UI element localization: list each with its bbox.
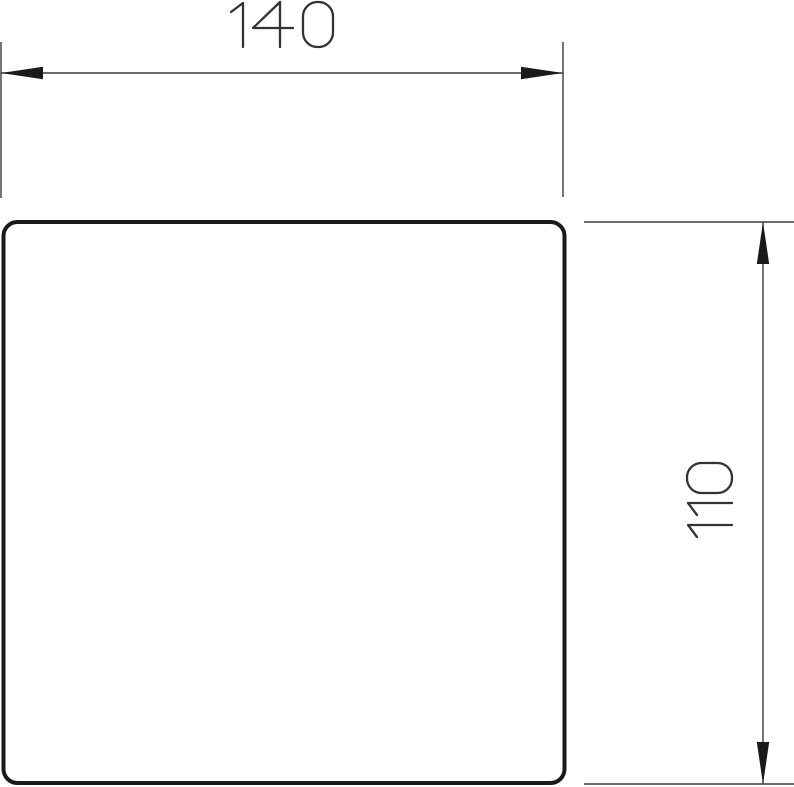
part-body <box>4 222 565 783</box>
technical-drawing <box>0 0 794 787</box>
height-arrow-up-icon <box>757 222 769 264</box>
width-dimension <box>1 2 563 198</box>
height-arrow-down-icon <box>757 742 769 784</box>
height-dimension-text <box>687 463 732 537</box>
height-dimension <box>584 222 794 784</box>
drawing-canvas <box>0 0 794 787</box>
width-arrow-left-icon <box>1 67 43 79</box>
width-dimension-text <box>231 2 333 47</box>
width-arrow-right-icon <box>521 67 563 79</box>
part-outline <box>4 222 565 783</box>
